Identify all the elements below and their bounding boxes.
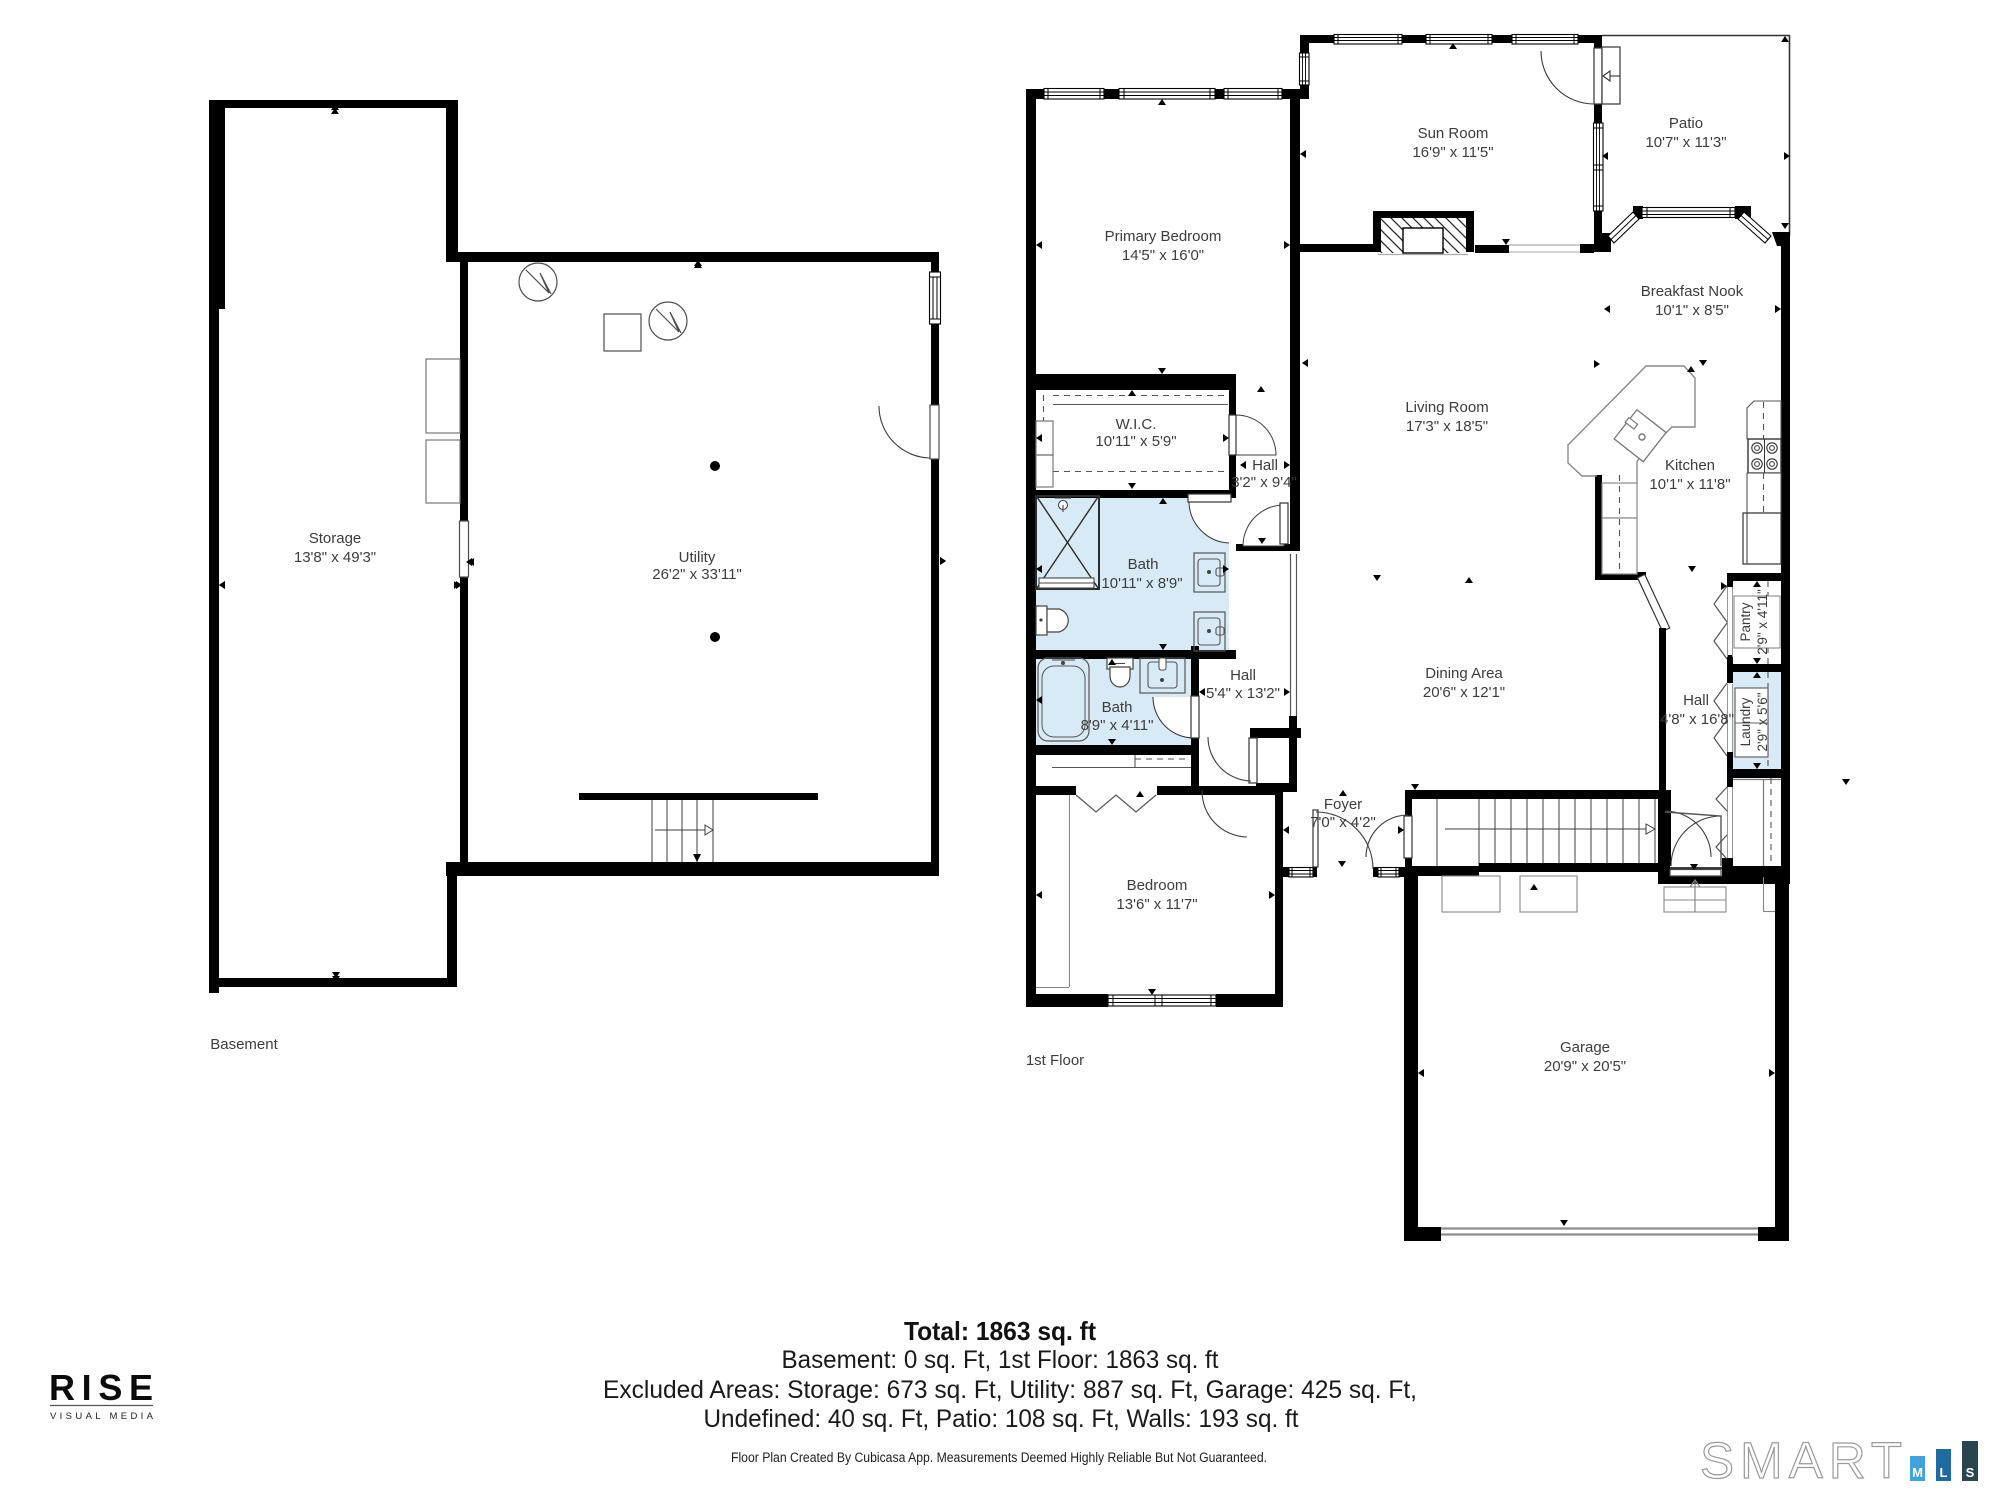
svg-text:10'7" x 11'3": 10'7" x 11'3" [1645, 134, 1726, 151]
svg-text:16'9" x 11'5": 16'9" x 11'5" [1412, 144, 1493, 161]
svg-text:7'0" x 4'2": 7'0" x 4'2" [1310, 814, 1376, 831]
svg-text:Undefined: 40 sq. Ft, Patio: 1: Undefined: 40 sq. Ft, Patio: 108 sq. Ft,… [704, 1405, 1299, 1433]
svg-text:Primary Bedroom: Primary Bedroom [1105, 228, 1222, 245]
svg-text:Kitchen: Kitchen [1665, 457, 1715, 474]
svg-text:1st Floor: 1st Floor [1026, 1052, 1084, 1069]
svg-text:4'8" x 16'8": 4'8" x 16'8" [1660, 711, 1734, 728]
svg-text:10'11" x 5'9": 10'11" x 5'9" [1095, 433, 1176, 450]
svg-text:Patio: Patio [1669, 115, 1703, 132]
svg-text:20'9" x 20'5": 20'9" x 20'5" [1544, 1058, 1626, 1075]
svg-text:RISE: RISE [49, 1367, 153, 1408]
svg-text:Garage: Garage [1560, 1039, 1610, 1056]
svg-text:L: L [1940, 1465, 1948, 1480]
svg-text:Utility: Utility [679, 549, 716, 566]
svg-text:3'2" x 9'4": 3'2" x 9'4" [1231, 474, 1297, 491]
svg-text:W.I.C.: W.I.C. [1116, 416, 1157, 433]
svg-text:17'3" x 18'5": 17'3" x 18'5" [1406, 418, 1488, 435]
svg-text:Basement: Basement [210, 1036, 278, 1053]
svg-text:20'6" x 12'1": 20'6" x 12'1" [1423, 684, 1505, 701]
svg-text:Foyer: Foyer [1324, 796, 1362, 813]
svg-text:Bath: Bath [1128, 556, 1159, 573]
svg-text:Pantry: Pantry [1738, 602, 1753, 641]
svg-text:Laundry: Laundry [1738, 697, 1753, 746]
svg-text:SMART: SMART [1700, 1432, 1902, 1489]
svg-text:Bath: Bath [1102, 699, 1133, 716]
svg-text:Dining Area: Dining Area [1425, 665, 1503, 682]
svg-text:10'1" x 11'8": 10'1" x 11'8" [1649, 476, 1730, 493]
svg-text:5'4" x 13'2": 5'4" x 13'2" [1206, 685, 1280, 702]
svg-text:2'9" x 5'6": 2'9" x 5'6" [1755, 692, 1770, 751]
svg-text:13'6" x 11'7": 13'6" x 11'7" [1116, 896, 1197, 913]
svg-text:Storage: Storage [309, 530, 362, 547]
svg-text:2'9" x 4'11": 2'9" x 4'11" [1755, 589, 1770, 655]
svg-text:26'2" x 33'11": 26'2" x 33'11" [652, 566, 742, 583]
svg-text:Hall: Hall [1230, 667, 1256, 684]
svg-text:10'11" x 8'9": 10'11" x 8'9" [1101, 575, 1182, 592]
svg-text:Total: 1863 sq. ft: Total: 1863 sq. ft [904, 1316, 1096, 1346]
svg-text:Excluded Areas: Storage: 673 s: Excluded Areas: Storage: 673 sq. Ft, Uti… [603, 1376, 1417, 1404]
svg-text:Hall: Hall [1252, 457, 1278, 474]
svg-text:14'5" x 16'0": 14'5" x 16'0" [1122, 247, 1204, 264]
svg-text:M: M [1912, 1465, 1923, 1480]
svg-text:S: S [1966, 1465, 1975, 1480]
svg-text:10'1" x 8'5": 10'1" x 8'5" [1655, 302, 1729, 319]
svg-text:Hall: Hall [1683, 692, 1709, 709]
svg-text:13'8" x 49'3": 13'8" x 49'3" [294, 549, 376, 566]
svg-text:8'9" x 4'11": 8'9" x 4'11" [1081, 717, 1154, 734]
svg-text:Living Room: Living Room [1405, 399, 1488, 416]
svg-text:Bedroom: Bedroom [1127, 877, 1188, 894]
svg-text:Sun Room: Sun Room [1418, 125, 1489, 142]
svg-text:Basement: 0 sq. Ft, 1st Floor:: Basement: 0 sq. Ft, 1st Floor: 1863 sq. … [782, 1346, 1219, 1374]
svg-text:Breakfast Nook: Breakfast Nook [1641, 283, 1744, 300]
svg-text:Floor Plan Created By Cubicasa: Floor Plan Created By Cubicasa App. Meas… [731, 1450, 1267, 1465]
